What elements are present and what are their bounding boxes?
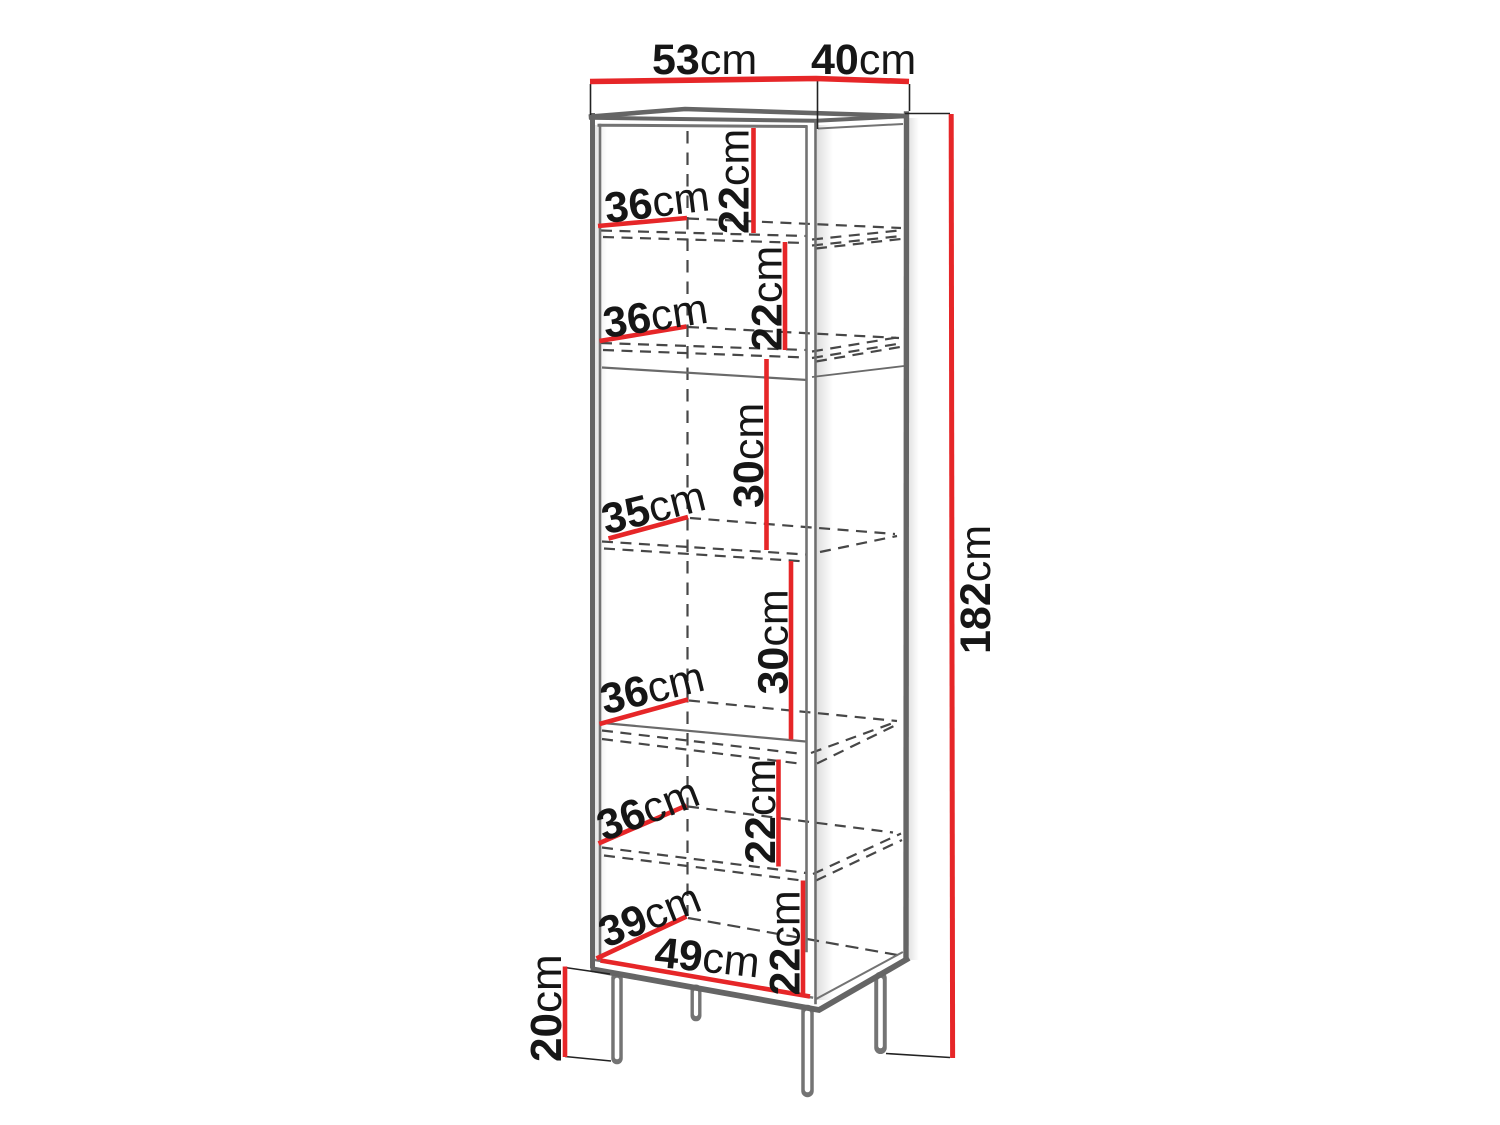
svg-text:36cm: 36cm — [590, 768, 705, 851]
svg-text:40cm: 40cm — [811, 36, 916, 84]
svg-text:30cm: 30cm — [725, 403, 773, 508]
svg-text:22cm: 22cm — [711, 129, 759, 234]
svg-text:35cm: 35cm — [597, 472, 711, 544]
svg-text:36cm: 36cm — [602, 172, 712, 232]
svg-text:20cm: 20cm — [522, 954, 571, 1062]
svg-text:49cm: 49cm — [652, 929, 762, 988]
svg-text:22cm: 22cm — [762, 890, 810, 995]
svg-text:36cm: 36cm — [600, 285, 711, 348]
svg-text:53cm: 53cm — [652, 36, 757, 84]
svg-text:36cm: 36cm — [596, 653, 709, 724]
svg-text:22cm: 22cm — [744, 246, 792, 351]
svg-text:182cm: 182cm — [952, 525, 1000, 654]
svg-text:30cm: 30cm — [750, 589, 798, 694]
svg-text:22cm: 22cm — [737, 759, 785, 864]
